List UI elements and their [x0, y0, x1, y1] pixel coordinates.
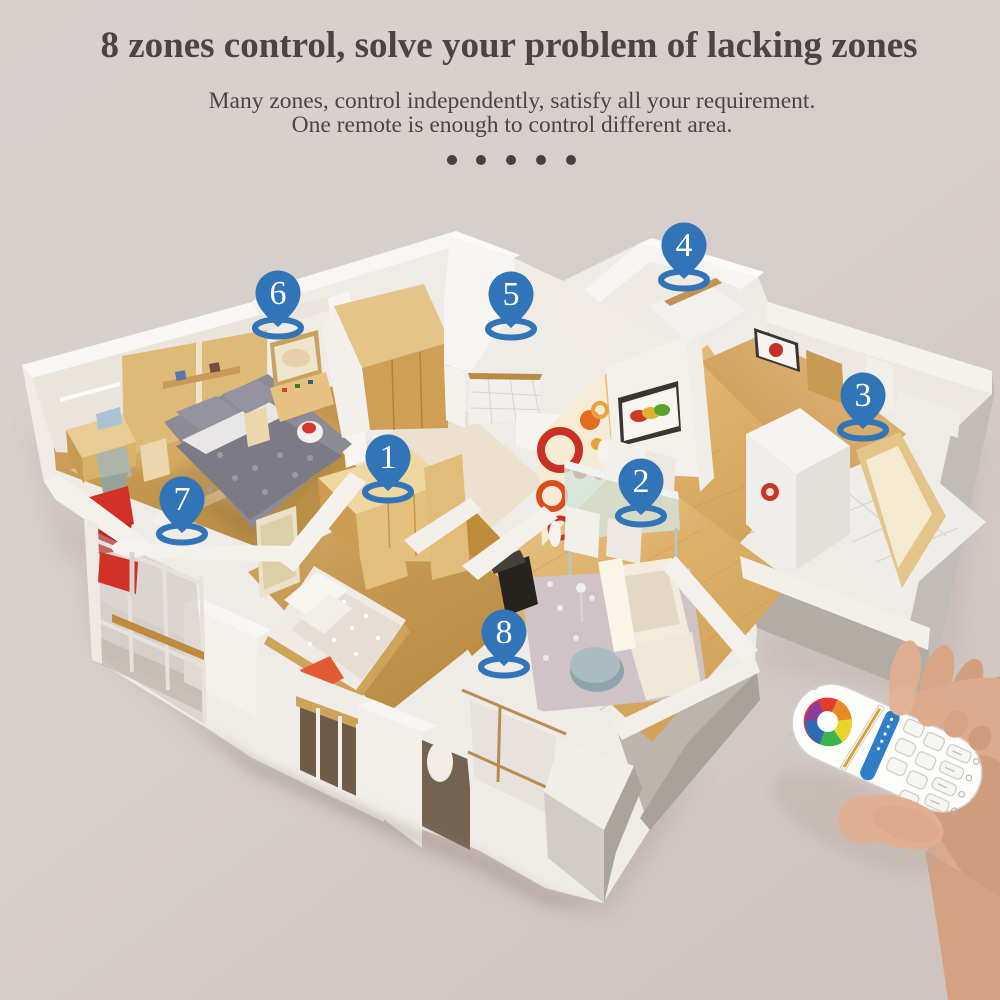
svg-text:3: 3 — [855, 377, 872, 414]
svg-text:1: 1 — [380, 439, 397, 476]
svg-text:6: 6 — [270, 275, 287, 312]
svg-text:5: 5 — [503, 276, 520, 313]
svg-text:4: 4 — [676, 227, 693, 264]
svg-text:8 zones control, solve your pr: 8 zones control, solve your problem of l… — [100, 25, 917, 66]
svg-text:7: 7 — [174, 481, 191, 518]
svg-text:2: 2 — [633, 463, 650, 500]
svg-text:8: 8 — [496, 614, 513, 651]
svg-text:One remote is enough to contro: One remote is enough to control differen… — [292, 112, 733, 138]
svg-text:Many zones, control independen: Many zones, control independently, satis… — [209, 88, 816, 114]
